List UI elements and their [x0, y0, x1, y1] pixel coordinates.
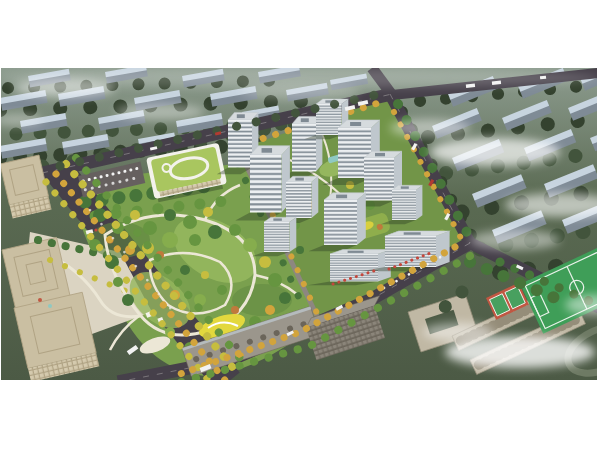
- tree: [183, 215, 197, 229]
- tree: [265, 305, 275, 315]
- tree: [122, 294, 134, 306]
- cloud: [240, 84, 360, 100]
- tree: [268, 273, 282, 287]
- tree: [201, 271, 209, 279]
- tree: [217, 285, 227, 295]
- tree: [229, 224, 241, 236]
- tree: [162, 232, 178, 248]
- tree: [189, 234, 201, 246]
- tree: [231, 306, 239, 314]
- tree: [130, 210, 140, 220]
- cloud: [423, 323, 493, 341]
- tree: [208, 225, 222, 239]
- plaza-kiosk: [48, 304, 52, 308]
- tree: [113, 277, 123, 287]
- tree: [180, 265, 190, 275]
- plaza-kiosk: [38, 298, 42, 302]
- tree: [296, 246, 304, 254]
- cloud: [15, 79, 115, 97]
- entrance-flag: [94, 228, 97, 231]
- cloud: [430, 138, 560, 166]
- tree: [143, 221, 157, 235]
- cloud: [470, 230, 560, 250]
- tree: [243, 238, 257, 252]
- masterplan-rendering: [0, 0, 600, 450]
- tree: [164, 209, 176, 221]
- cloud: [390, 119, 470, 137]
- tree: [279, 292, 291, 304]
- tree: [259, 256, 271, 268]
- cloud: [445, 336, 595, 368]
- cloud: [115, 104, 205, 120]
- tree: [203, 207, 213, 217]
- rendering-page: [0, 0, 600, 450]
